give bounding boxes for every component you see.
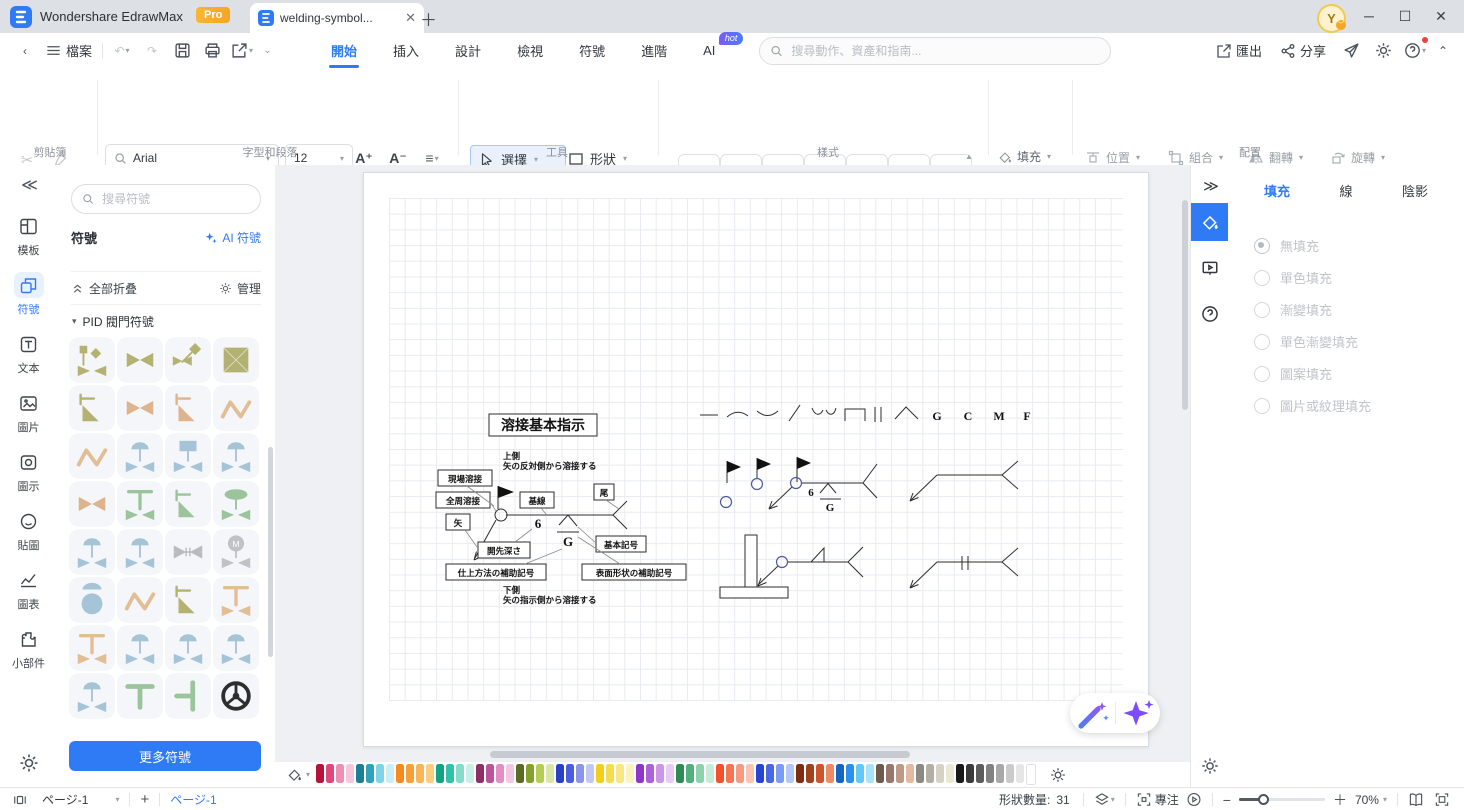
color-swatch[interactable] xyxy=(676,764,684,783)
color-swatch[interactable] xyxy=(326,764,334,783)
color-swatch[interactable] xyxy=(886,764,894,783)
color-swatch[interactable] xyxy=(906,764,914,783)
collapse-panel-icon[interactable]: ≪ xyxy=(21,175,36,195)
more-symbols-button[interactable]: 更多符號 xyxy=(69,741,261,771)
arrange-group-label: 配置 xyxy=(1085,144,1415,160)
color-swatch[interactable] xyxy=(856,764,864,783)
ai-sparkle-icon xyxy=(204,231,218,245)
label-all-around: 全周溶接 xyxy=(445,496,481,506)
radio-icon xyxy=(1254,366,1270,382)
export-icon xyxy=(1216,43,1232,59)
help-icon[interactable]: ▾ xyxy=(1400,38,1430,64)
zoom-out-button[interactable]: − xyxy=(1223,792,1231,808)
color-swatch[interactable] xyxy=(636,764,644,783)
collapse-all-icon xyxy=(71,282,84,295)
symbol-pid-valve-gate[interactable] xyxy=(117,337,163,383)
ribbon: ✂ ▾ 剪貼簿 Arial▾ 12▾ A⁺ A⁻ ≡▾ BIUSX²X₂T▾↕≡… xyxy=(0,68,1464,166)
color-swatch[interactable] xyxy=(516,764,524,783)
radio-icon xyxy=(1254,398,1270,414)
legend-letter-m: M xyxy=(993,409,1004,423)
fill-option-漸變填充[interactable]: 漸變填充 xyxy=(1254,300,1464,319)
fill-option-單色填充[interactable]: 單色填充 xyxy=(1254,268,1464,287)
symbol-pid-valve-gate-3[interactable] xyxy=(69,481,115,527)
palette-swatches xyxy=(316,764,1036,785)
image-icon xyxy=(14,390,44,416)
symbol-pid-valve-angle-2[interactable] xyxy=(165,481,211,527)
search-icon xyxy=(82,192,94,206)
focus-icon[interactable] xyxy=(1136,792,1152,807)
doc-tab-close-icon[interactable]: ✕ xyxy=(405,10,416,26)
right-rail: ≫ xyxy=(1190,165,1229,787)
color-swatch[interactable] xyxy=(396,764,404,783)
fit-screen-icon[interactable] xyxy=(1434,792,1450,807)
styles-group-label: 樣式 xyxy=(678,144,978,160)
label-site-weld: 現場溶接 xyxy=(448,474,483,484)
fill-bucket-icon xyxy=(998,150,1012,164)
divider xyxy=(1072,80,1073,155)
note-bottom-2: 矢の指示側から溶接する xyxy=(502,595,597,605)
maximize-button[interactable]: ☐ xyxy=(1388,0,1422,32)
color-swatch[interactable] xyxy=(816,764,824,783)
diagram-title: 溶接基本指示 xyxy=(501,417,585,434)
fill-panel-icon[interactable] xyxy=(1191,203,1229,241)
label-arrow: 矢 xyxy=(453,518,463,528)
left-rail: ≪ 模板符號文本圖片圖示貼圖圖表小部件 xyxy=(0,165,58,787)
collapse-ribbon-icon[interactable]: ⌃ xyxy=(1432,38,1454,64)
legend-letter-c: C xyxy=(964,409,973,423)
color-swatch[interactable] xyxy=(366,764,374,783)
fill-menu[interactable]: 填充▾ xyxy=(998,148,1051,165)
manage-gear-icon xyxy=(219,282,232,295)
tools-group-label: 工具 xyxy=(470,144,644,160)
symbol-pid-valve-tilt[interactable] xyxy=(165,385,211,431)
color-swatch[interactable] xyxy=(1016,764,1024,783)
symbol-pid-valve-box[interactable] xyxy=(213,337,259,383)
note-top-2: 矢の反対側から溶接する xyxy=(502,461,597,471)
color-swatch[interactable] xyxy=(426,764,434,783)
color-swatch[interactable] xyxy=(946,764,954,783)
clipboard-group-label: 剪貼簿 xyxy=(8,144,92,160)
minimize-button[interactable]: ─ xyxy=(1352,0,1386,32)
sidebar-item-image[interactable]: 圖片 xyxy=(5,390,53,435)
play-icon[interactable] xyxy=(1186,792,1202,807)
sidebar-item-chart[interactable]: 圖表 xyxy=(5,567,53,612)
color-swatch[interactable] xyxy=(566,764,574,783)
canvas-area[interactable]: 溶接基本指示 上側 矢の反対側から溶接する 下側 矢の指示側から溶接する 現場溶… xyxy=(275,165,1190,787)
undo-button[interactable]: ↶▾ xyxy=(107,38,137,64)
symbol-pid-fitting-tee-right[interactable] xyxy=(165,673,211,719)
color-swatch[interactable] xyxy=(556,764,564,783)
color-swatch[interactable] xyxy=(646,764,654,783)
global-search-input[interactable] xyxy=(789,43,1100,59)
color-swatch[interactable] xyxy=(1006,764,1014,783)
layers-icon[interactable] xyxy=(1094,792,1110,807)
symbol-header-row: 符號 AI 符號 xyxy=(71,228,261,247)
horizontal-scrollbar[interactable] xyxy=(490,751,910,758)
color-swatch[interactable] xyxy=(386,764,394,783)
sticker-icon xyxy=(14,508,44,534)
color-swatch[interactable] xyxy=(576,764,584,783)
divider xyxy=(97,80,98,155)
color-swatch[interactable] xyxy=(796,764,804,783)
menu-tab-開始[interactable]: 開始 xyxy=(317,34,371,67)
symbol-pid-valve-diaphragm-2[interactable] xyxy=(69,529,115,575)
color-swatch[interactable] xyxy=(976,764,984,783)
finish-letter-2: G xyxy=(826,502,835,514)
rail-items: 模板符號文本圖片圖示貼圖圖表小部件 xyxy=(5,199,53,671)
magic-wand-button[interactable] xyxy=(1071,693,1115,733)
focus-label[interactable]: 專注 xyxy=(1155,791,1179,808)
menu-tabs: 開始插入設計檢視符號進階AIhot xyxy=(317,34,729,67)
status-bar: ページ-1▾ + ページ-1 形狀數量: 31 ▾ 專注 − xyxy=(0,787,1464,810)
fill-option-圖案填充[interactable]: 圖案填充 xyxy=(1254,364,1464,383)
status-left: ページ-1▾ + ページ-1 xyxy=(0,791,217,808)
close-button[interactable]: ✕ xyxy=(1424,0,1458,32)
menu-tab-符號[interactable]: 符號 xyxy=(565,34,619,67)
label-groove-depth: 開先深さ xyxy=(487,546,521,556)
fill-options: 無填充單色填充漸變填充單色漸變填充圖案填充圖片或紋理填充 xyxy=(1228,212,1464,415)
color-palette-bar: ▾ xyxy=(275,762,1190,787)
color-swatch[interactable] xyxy=(786,764,794,783)
active-page-tab[interactable]: ページ-1 xyxy=(170,791,216,808)
sidebar-item-widget[interactable]: 小部件 xyxy=(5,626,53,671)
color-swatch[interactable] xyxy=(626,764,634,783)
symbol-pid-valve-mushroom[interactable] xyxy=(213,481,259,527)
color-swatch[interactable] xyxy=(436,764,444,783)
color-swatch[interactable] xyxy=(536,764,544,783)
symbol-pid-valve-diaphragm-4[interactable] xyxy=(117,625,163,671)
symbol-pid-valve-motor[interactable]: M xyxy=(213,529,259,575)
label-tail: 尾 xyxy=(599,488,609,498)
color-swatch[interactable] xyxy=(746,764,754,783)
color-swatch[interactable] xyxy=(686,764,694,783)
legend-letter-f: F xyxy=(1023,409,1030,423)
search-icon xyxy=(770,44,783,58)
color-swatch[interactable] xyxy=(666,764,674,783)
color-swatch[interactable] xyxy=(826,764,834,783)
format-tab-陰影[interactable]: 陰影 xyxy=(1396,179,1434,202)
symbol-pid-valve-tee-2[interactable] xyxy=(213,577,259,623)
back-button[interactable]: ‹ xyxy=(10,38,40,64)
ai-sparkle-button[interactable] xyxy=(1116,693,1160,733)
edrawmax-window: Wondershare EdrawMax Pro welding-symbol.… xyxy=(0,0,1464,810)
color-swatch[interactable] xyxy=(896,764,904,783)
fill-option-單色漸變填充[interactable]: 單色漸變填充 xyxy=(1254,332,1464,351)
collapse-all-button[interactable]: 全部折叠 xyxy=(71,280,137,297)
symbol-pid-valve-check[interactable] xyxy=(165,529,211,575)
divider xyxy=(458,80,459,155)
color-swatch[interactable] xyxy=(476,764,484,783)
palette-fill-icon[interactable] xyxy=(283,766,305,784)
finish-letter: G xyxy=(563,534,573,549)
hot-badge: hot xyxy=(719,32,744,45)
color-swatch[interactable] xyxy=(346,764,354,783)
share-icon xyxy=(1280,43,1296,59)
format-panel: 填充線陰影 無填充單色填充漸變填充單色漸變填充圖案填充圖片或紋理填充 xyxy=(1228,165,1464,787)
zoom-in-button[interactable]: ＋ xyxy=(1333,790,1347,810)
menu-tab-設計[interactable]: 設計 xyxy=(441,34,495,67)
color-swatch[interactable] xyxy=(876,764,884,783)
ai-symbols-button[interactable]: AI 符號 xyxy=(204,229,261,246)
label-finish-aux: 仕上方法の補助記号 xyxy=(457,568,535,578)
symbol-pid-pipe-zigzag[interactable] xyxy=(213,385,259,431)
sidebar-item-sticker[interactable]: 貼圖 xyxy=(5,508,53,553)
menu-tab-進階[interactable]: 進階 xyxy=(627,34,681,67)
color-swatch[interactable] xyxy=(706,764,714,783)
color-swatch[interactable] xyxy=(1026,764,1036,785)
symbol-toolbar-row: 全部折叠 管理 xyxy=(71,271,261,305)
color-swatch[interactable] xyxy=(926,764,934,783)
radio-icon xyxy=(1254,270,1270,286)
color-swatch[interactable] xyxy=(956,764,964,783)
collapse-right-panel-icon[interactable]: ≫ xyxy=(1203,177,1217,195)
symbol-pid-valve-tee[interactable] xyxy=(117,481,163,527)
color-swatch[interactable] xyxy=(996,764,1004,783)
symbol-grid: M xyxy=(69,337,263,719)
format-panel-tabs: 填充線陰影 xyxy=(1228,165,1464,212)
menu-tab-插入[interactable]: 插入 xyxy=(379,34,433,67)
chart-icon xyxy=(14,567,44,593)
menu-bar: ‹ 檔案 ↶▾ ↷ ▾ ⌄ 開始插入設計檢視符號進階AIhot xyxy=(0,33,1464,68)
color-swatch[interactable] xyxy=(586,764,594,783)
divider xyxy=(102,43,103,59)
global-search[interactable] xyxy=(759,37,1111,65)
iconlib-icon xyxy=(14,449,44,475)
depth-value: 6 xyxy=(535,516,542,531)
color-swatch[interactable] xyxy=(986,764,994,783)
right-rail-settings-icon[interactable] xyxy=(1201,757,1219,775)
color-swatch[interactable] xyxy=(936,764,944,783)
symbol-search[interactable] xyxy=(71,184,261,214)
settings-icon[interactable] xyxy=(1368,38,1398,64)
symbol-icon xyxy=(14,272,44,298)
symbol-panel: 符號 AI 符號 全部折叠 管理 ▾ xyxy=(57,165,276,787)
color-swatch[interactable] xyxy=(316,764,324,783)
font-group-label: 字型和段落 xyxy=(105,144,435,160)
color-swatch[interactable] xyxy=(966,764,974,783)
symbol-pid-valve-diamond[interactable] xyxy=(165,337,211,383)
widget-icon xyxy=(14,626,44,652)
status-right: 形狀數量: 31 ▾ 專注 − ＋ 70% ▾ xyxy=(996,790,1464,810)
symbol-pid-handwheel[interactable] xyxy=(213,673,259,719)
toolbar-more-icon[interactable]: ⌄ xyxy=(257,38,277,64)
color-swatch[interactable] xyxy=(596,764,604,783)
color-swatch[interactable] xyxy=(846,764,854,783)
note-top-1: 上側 xyxy=(503,451,521,461)
symbol-pid-valve-tee-3[interactable] xyxy=(69,625,115,671)
redo-button[interactable]: ↷ xyxy=(137,38,167,64)
menu-tab-檢視[interactable]: 檢視 xyxy=(503,34,557,67)
shape-count-value: 31 xyxy=(1056,793,1069,807)
color-swatch[interactable] xyxy=(456,764,464,783)
sidebar-item-template[interactable]: 模板 xyxy=(5,213,53,258)
format-tab-線[interactable]: 線 xyxy=(1333,179,1358,202)
symbol-pid-valve-gate-2[interactable] xyxy=(117,385,163,431)
sidebar-item-text[interactable]: 文本 xyxy=(5,331,53,376)
color-swatch[interactable] xyxy=(406,764,414,783)
fill-option-無填充[interactable]: 無填充 xyxy=(1254,236,1464,255)
color-swatch[interactable] xyxy=(526,764,534,783)
zoom-value[interactable]: 70% xyxy=(1355,793,1379,807)
document-tab[interactable]: welding-symbol... ✕ xyxy=(250,3,424,33)
new-tab-button[interactable]: ＋ xyxy=(420,6,437,31)
symbol-pid-valve-ball[interactable] xyxy=(69,577,115,623)
color-swatch[interactable] xyxy=(656,764,664,783)
note-bottom-1: 下側 xyxy=(503,585,521,595)
symbol-pid-valve-diaphragm-6[interactable] xyxy=(213,625,259,671)
symbol-pid-fitting-tee[interactable] xyxy=(117,673,163,719)
symbol-pid-valve-actuator[interactable] xyxy=(69,337,115,383)
add-page-button[interactable]: + xyxy=(140,791,149,808)
color-swatch[interactable] xyxy=(776,764,784,783)
pro-badge: Pro xyxy=(196,7,230,23)
symbol-pid-valve-diaphragm-3[interactable] xyxy=(117,529,163,575)
symbol-pid-valve-diaphragm[interactable] xyxy=(117,433,163,479)
doc-tab-logo-icon xyxy=(258,10,274,26)
divider xyxy=(658,80,659,155)
color-swatch[interactable] xyxy=(606,764,614,783)
sidebar-item-iconlib[interactable]: 圖示 xyxy=(5,449,53,494)
vertical-scrollbar[interactable] xyxy=(1182,200,1188,410)
color-swatch[interactable] xyxy=(466,764,474,783)
slideshow-icon[interactable] xyxy=(12,793,28,807)
label-base-line: 基線 xyxy=(527,496,546,506)
presentation-panel-icon[interactable] xyxy=(1191,249,1229,287)
color-swatch[interactable] xyxy=(806,764,814,783)
color-swatch[interactable] xyxy=(496,764,504,783)
color-swatch[interactable] xyxy=(416,764,424,783)
color-swatch[interactable] xyxy=(356,764,364,783)
symbol-panel-scrollbar[interactable] xyxy=(268,447,273,657)
color-swatch[interactable] xyxy=(696,764,704,783)
menu-tab-AI[interactable]: AIhot xyxy=(689,36,729,65)
pages-overview-icon[interactable] xyxy=(1408,792,1424,807)
symbol-header: 符號 xyxy=(71,228,97,247)
avatar-vip-badge: ﹀ xyxy=(1336,20,1346,30)
symbol-search-input[interactable] xyxy=(100,191,250,207)
export-button[interactable]: 匯出 xyxy=(1208,37,1270,64)
title-bar: Wondershare EdrawMax Pro welding-symbol.… xyxy=(0,0,1464,33)
color-swatch[interactable] xyxy=(336,764,344,783)
format-tab-填充[interactable]: 填充 xyxy=(1258,179,1296,202)
divider xyxy=(988,80,989,155)
symbol-pid-valve-diaphragm-7[interactable] xyxy=(69,673,115,719)
color-swatch[interactable] xyxy=(446,764,454,783)
color-swatch[interactable] xyxy=(726,764,734,783)
color-swatch[interactable] xyxy=(486,764,494,783)
template-icon xyxy=(14,213,44,239)
color-swatch[interactable] xyxy=(836,764,844,783)
symbol-pid-pipe-zigzag-3[interactable] xyxy=(117,577,163,623)
doc-tab-title: welding-symbol... xyxy=(280,11,399,25)
print-button[interactable] xyxy=(197,38,227,64)
symbol-pid-pipe-zigzag-2[interactable] xyxy=(69,433,115,479)
symbol-pid-valve-diaphragm-5[interactable] xyxy=(165,625,211,671)
color-swatch[interactable] xyxy=(916,764,924,783)
send-icon[interactable] xyxy=(1336,38,1366,64)
radio-icon xyxy=(1254,238,1270,254)
welding-diagram[interactable]: 溶接基本指示 上側 矢の反対側から溶接する 下側 矢の指示側から溶接する 現場溶… xyxy=(275,165,1190,765)
color-swatch[interactable] xyxy=(866,764,874,783)
shape-count-label: 形狀數量: xyxy=(999,791,1050,808)
notification-dot xyxy=(1422,37,1428,43)
color-swatch[interactable] xyxy=(376,764,384,783)
menu-right-actions: 匯出 分享 ▾ ⌃ xyxy=(1208,37,1464,64)
text-icon xyxy=(14,331,44,357)
help-panel-icon[interactable] xyxy=(1191,295,1229,333)
file-menu[interactable]: 檔案 xyxy=(40,38,98,64)
page-select[interactable]: ページ-1▾ xyxy=(42,791,119,808)
radio-icon xyxy=(1254,334,1270,350)
category-pid-valves[interactable]: ▾ PID 閥門符號 xyxy=(71,313,154,330)
legend-letter-g: G xyxy=(932,409,941,423)
app-logo-icon xyxy=(10,6,32,28)
save-button[interactable] xyxy=(167,38,197,64)
app-title: Wondershare EdrawMax xyxy=(40,9,183,24)
zoom-slider-knob[interactable] xyxy=(1258,794,1269,805)
color-swatch[interactable] xyxy=(766,764,774,783)
color-swatch[interactable] xyxy=(506,764,514,783)
rail-settings-icon[interactable] xyxy=(19,753,39,773)
manage-button[interactable]: 管理 xyxy=(219,280,261,297)
label-basic-symbol: 基本記号 xyxy=(603,540,639,550)
quick-export-button[interactable]: ▾ xyxy=(227,38,257,64)
color-swatch[interactable] xyxy=(756,764,764,783)
color-swatch[interactable] xyxy=(546,764,554,783)
color-swatch[interactable] xyxy=(716,764,724,783)
sidebar-item-symbol[interactable]: 符號 xyxy=(5,272,53,317)
color-swatch[interactable] xyxy=(736,764,744,783)
svg-text:M: M xyxy=(232,539,239,549)
palette-caret-icon[interactable]: ▾ xyxy=(306,770,310,779)
label-surface-aux: 表面形状の補助記号 xyxy=(595,568,673,578)
ai-assistant-pill xyxy=(1070,693,1160,733)
depth-value-2: 6 xyxy=(808,487,814,499)
symbol-pid-valve-relief[interactable] xyxy=(213,433,259,479)
symbol-pid-valve-needle[interactable] xyxy=(165,577,211,623)
zoom-slider[interactable] xyxy=(1239,798,1325,801)
color-swatch[interactable] xyxy=(616,764,624,783)
fill-option-圖片或紋理填充[interactable]: 圖片或紋理填充 xyxy=(1254,396,1464,415)
symbol-pid-valve-piston[interactable] xyxy=(165,433,211,479)
symbol-pid-valve-angle[interactable] xyxy=(69,385,115,431)
share-button[interactable]: 分享 xyxy=(1272,37,1334,64)
palette-settings-icon[interactable] xyxy=(1050,767,1066,783)
radio-icon xyxy=(1254,302,1270,318)
